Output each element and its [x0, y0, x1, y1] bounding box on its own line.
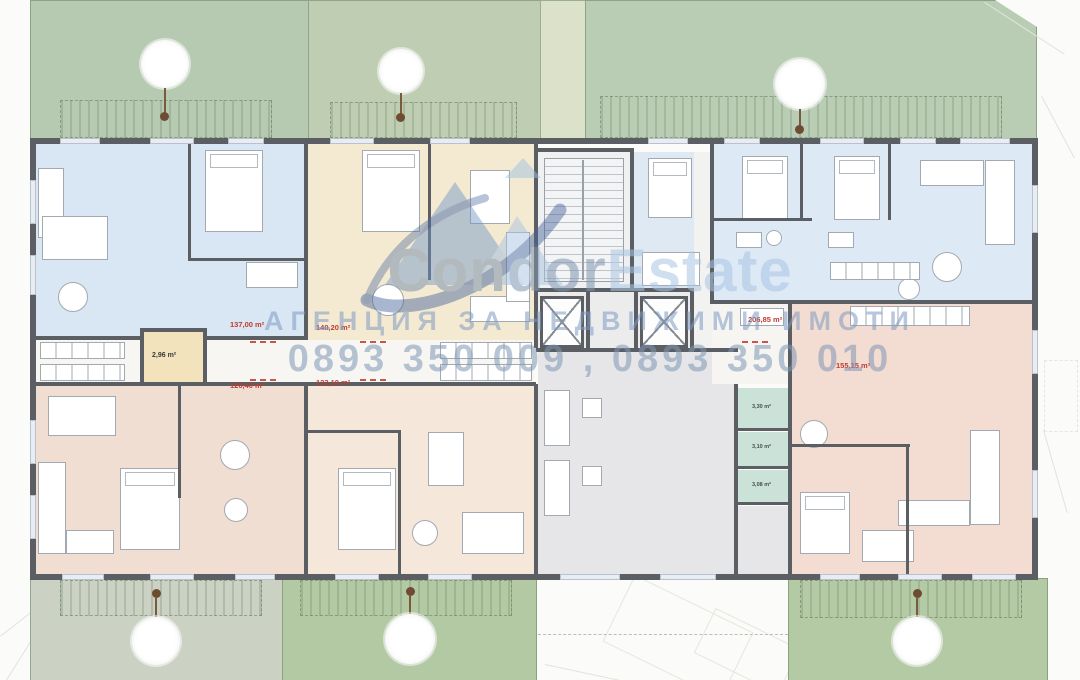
interior-wall	[888, 142, 891, 220]
interior-wall	[534, 384, 538, 578]
sketch-parcel-outline	[1044, 360, 1078, 432]
sofa-icon	[506, 232, 530, 302]
interior-wall	[694, 348, 738, 352]
window	[820, 138, 864, 144]
kitchen-counter-icon	[40, 342, 125, 359]
pillow-icon	[805, 496, 845, 510]
window	[30, 180, 36, 224]
sofa-icon	[462, 512, 524, 554]
window	[335, 574, 379, 580]
window	[724, 138, 760, 144]
interior-wall	[140, 328, 144, 386]
interior-wall	[586, 292, 590, 350]
sofa-icon	[970, 430, 1000, 525]
interior-wall	[308, 430, 400, 433]
window	[972, 574, 1016, 580]
side-table-icon	[582, 398, 602, 418]
area-label-storage-1: 3,30 m²	[752, 404, 771, 410]
window	[820, 574, 860, 580]
area-label-storage-3: 3,08 m²	[752, 482, 771, 488]
wardrobe-icon	[246, 262, 298, 288]
window	[1032, 470, 1038, 518]
interior-wall	[800, 142, 803, 220]
interior-wall	[712, 300, 1034, 304]
window	[30, 255, 36, 295]
tree-trunk-icon	[916, 598, 918, 618]
dining-table-icon	[428, 432, 464, 486]
window	[30, 420, 36, 464]
sketch-line	[1043, 430, 1068, 513]
area-label-apartment-top-left: 137,00 m²	[230, 320, 264, 329]
dimension-dash	[360, 379, 386, 381]
interior-wall	[30, 382, 306, 386]
sofa-icon	[985, 160, 1015, 245]
pillow-icon	[125, 472, 175, 486]
interior-wall	[534, 138, 538, 348]
kitchen-counter-icon	[830, 262, 920, 280]
interior-wall	[788, 300, 792, 578]
tree-trunk-icon	[164, 88, 166, 114]
desk-chair-icon	[766, 230, 782, 246]
tree-root-icon	[396, 113, 405, 122]
window	[235, 574, 275, 580]
window	[428, 574, 472, 580]
pillow-icon	[367, 154, 415, 168]
window	[900, 138, 936, 144]
sofa-icon	[544, 460, 570, 516]
tree-icon	[385, 614, 435, 664]
dimension-dash	[250, 341, 276, 343]
tree-icon	[141, 40, 189, 88]
window	[430, 138, 470, 144]
interior-wall	[203, 328, 207, 386]
desk-icon	[828, 232, 854, 248]
kitchen-counter-icon	[40, 364, 125, 381]
garden-top-strip	[540, 0, 587, 142]
interior-wall	[710, 138, 714, 304]
tree-icon	[379, 49, 423, 93]
interior-wall	[140, 328, 207, 332]
area-label-apartment-bottom-middle: 123,10 m²	[316, 378, 350, 387]
interior-wall	[734, 466, 790, 469]
tree-root-icon	[913, 589, 922, 598]
pillow-icon	[839, 160, 875, 174]
area-label-storage-2: 3,10 m²	[752, 444, 771, 450]
sketch-line	[1041, 96, 1075, 158]
area-label-apartment-top-middle: 140,20 m²	[316, 323, 350, 332]
bed-icon	[648, 158, 692, 218]
window	[62, 574, 104, 580]
window	[1032, 185, 1038, 233]
terrace-paving	[330, 102, 517, 138]
bed-icon	[205, 150, 263, 232]
area-label-apartment-top-right: 206,85 m²	[748, 315, 782, 324]
sofa-icon	[920, 160, 984, 186]
sofa-icon	[66, 530, 114, 554]
interior-wall	[712, 218, 812, 221]
interior-wall	[178, 386, 181, 498]
desk-icon	[736, 232, 762, 248]
kitchen-counter-icon	[850, 306, 970, 326]
dining-table-icon	[470, 170, 510, 224]
bed-icon	[362, 150, 420, 232]
interior-wall	[690, 292, 694, 350]
window	[648, 138, 688, 144]
tree-trunk-icon	[155, 598, 157, 618]
interior-wall	[203, 336, 306, 340]
area-label-lobby-storage: 2,96 m²	[152, 352, 176, 359]
dimension-dash	[360, 341, 386, 343]
round-table-icon	[372, 284, 404, 316]
pillow-icon	[747, 160, 783, 174]
sofa-icon	[38, 462, 66, 554]
interior-wall	[398, 430, 401, 574]
dining-table-icon	[42, 216, 108, 260]
window	[150, 574, 194, 580]
entrance-hall-east	[734, 506, 788, 574]
tree-trunk-icon	[400, 93, 402, 115]
window	[1032, 330, 1038, 374]
pillow-icon	[343, 472, 391, 486]
area-label-apartment-right: 155,15 m²	[836, 361, 870, 370]
kitchen-counter-icon	[440, 364, 532, 381]
tree-icon	[775, 59, 825, 109]
bathtub-icon	[642, 252, 700, 286]
interior-wall	[188, 142, 191, 260]
window	[30, 495, 36, 539]
tree-trunk-icon	[409, 596, 411, 615]
tree-root-icon	[406, 587, 415, 596]
interior-wall	[30, 336, 140, 340]
window	[960, 138, 1010, 144]
window	[898, 574, 942, 580]
floor-plan-image: 137,00 m² 140,20 m² 206,85 m² 126,40 m² …	[0, 0, 1080, 680]
window	[150, 138, 194, 144]
interior-wall	[906, 444, 909, 574]
entrance-door	[560, 574, 620, 580]
interior-wall	[734, 428, 790, 431]
interior-wall	[304, 382, 308, 578]
pillow-icon	[653, 162, 687, 176]
property-dash-line	[538, 634, 788, 635]
terrace-paving	[800, 580, 1022, 618]
stair-rail	[582, 160, 584, 280]
round-table-icon	[220, 440, 250, 470]
area-label-apartment-bottom-left: 126,40 m²	[230, 381, 264, 390]
kitchen-counter-icon	[440, 342, 532, 359]
bed-icon	[800, 492, 850, 554]
interior-wall	[428, 142, 431, 280]
interior-wall	[536, 148, 634, 152]
dimension-dash	[742, 341, 768, 343]
tree-root-icon	[795, 125, 804, 134]
interior-wall	[630, 152, 634, 292]
interior-wall	[536, 348, 694, 352]
armchair-icon	[224, 498, 248, 522]
interior-wall	[734, 384, 738, 578]
bed-icon	[120, 468, 180, 550]
round-table-icon	[58, 282, 88, 312]
window	[330, 138, 374, 144]
interior-wall	[792, 444, 910, 447]
interior-wall	[304, 138, 308, 340]
interior-wall	[734, 502, 790, 505]
tree-root-icon	[160, 112, 169, 121]
bed-icon	[834, 156, 880, 220]
staircase	[544, 158, 624, 282]
tree-icon	[893, 617, 941, 665]
armchair-icon	[898, 278, 920, 300]
terrace-paving	[300, 580, 512, 616]
tree-root-icon	[152, 589, 161, 598]
round-table-icon	[932, 252, 962, 282]
elevator-icon	[640, 296, 688, 348]
interior-wall	[634, 292, 638, 350]
window	[60, 138, 100, 144]
side-table-icon	[582, 466, 602, 486]
bed-icon	[742, 156, 788, 220]
elevator-icon	[540, 296, 584, 348]
interior-wall	[536, 288, 694, 292]
entrance-door	[660, 574, 716, 580]
dining-table-icon	[48, 396, 116, 436]
bed-icon	[338, 468, 396, 550]
tree-icon	[132, 617, 180, 665]
sofa-icon	[544, 390, 570, 446]
terrace-paving	[60, 580, 262, 616]
round-table-icon	[412, 520, 438, 546]
window	[228, 138, 264, 144]
interior-wall	[188, 258, 306, 261]
pillow-icon	[210, 154, 258, 168]
